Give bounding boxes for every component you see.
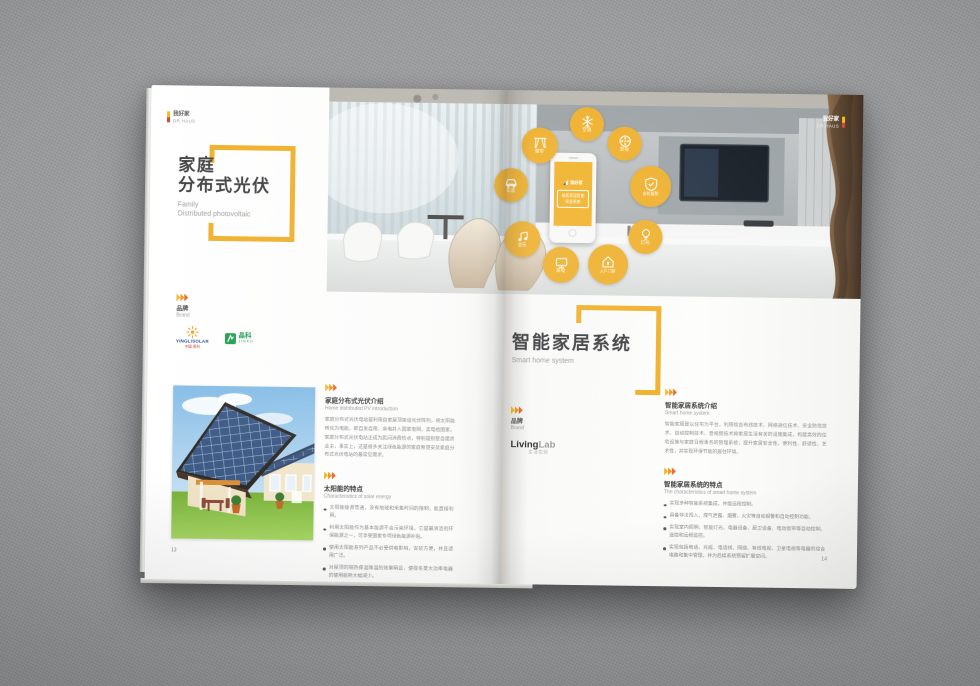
page-title: 家庭 分布式光伏 Family Distributed photovoltaic (178, 155, 271, 220)
brand-label-cn: 品牌 (176, 303, 189, 312)
publisher-logo: 我好家 DR.HAUS (167, 111, 196, 124)
hotspot-label: 窗帘 (535, 150, 544, 155)
jinko-sub: JINKO (238, 340, 253, 344)
feature-item: 实现室内照明、智能灯光、电器设备、厨卫设备、电动窗帘等自动控制、遥控和远程监控。 (663, 524, 825, 543)
phone-screen-text: 助您家居智能 家居系统 (556, 190, 589, 209)
livinglab-name-2: Lab (538, 439, 555, 450)
tv-icon (554, 255, 567, 268)
chevrons-icon (511, 406, 524, 414)
publisher-name-en: DR.HAUS (817, 123, 839, 128)
sunburst-icon (186, 326, 199, 339)
title-accent-frame (575, 305, 661, 395)
hotspot-label: 空调 (582, 129, 591, 134)
feature-item: 利用太阳能作为基本能源不会污染环境，它是最清洁的环保能源之一，可享受国家专项绿色… (323, 525, 453, 543)
section-smarthome-intro: 智能家居系统介绍 Smart home system 智能家居是以住宅为平台，利… (664, 388, 827, 459)
section-solar-features: 太阳能的特点 Characteristics of solar energy 太… (323, 472, 455, 582)
yingli-name: YINGLISOLAR (176, 338, 209, 343)
feature-item: 太阳能能源普通，没有地域和采集时间的限制，能直接利用。 (323, 505, 453, 523)
hotspot-label: 入户门禁 (600, 270, 616, 274)
feature-list: 太阳能能源普通，没有地域和采集时间的限制，能直接利用。 利用太阳能作为基本能源不… (323, 505, 454, 582)
section-body: 智能家居是以住宅为平台，利用综合布线技术、网络通信技术、安全防范技术、自动控制技… (664, 421, 826, 459)
light-bulb-icon (639, 227, 652, 240)
living-room-photo: 我好家 DR.HAUS 我好家 助您家居智能 家居系统 (327, 88, 864, 299)
title-en-line2: Distributed photovoltaic (178, 210, 271, 221)
page-number-right: 14 (821, 556, 827, 562)
spine-fold-shadow (475, 90, 534, 585)
livinglab-sub: 生活实验 (510, 449, 555, 456)
brand-label-en: Brand (176, 312, 189, 318)
film-reel-icon (618, 134, 631, 147)
page-right: 智能家居系统 Smart home system 品牌 Brand Living… (501, 90, 864, 589)
feature-item: 实现多种智能系统集成，并能远程控制。 (664, 501, 826, 511)
hotspot-lighting: 灯光 (628, 220, 662, 254)
section-smarthome-features: 智能家居系统的特点 The characteristics of smart h… (663, 468, 826, 563)
section-pv-intro: 家庭分布式光伏介绍 Home distributed PV introducti… (324, 384, 455, 463)
section-heading-cn: 家庭分布式光伏介绍 (325, 395, 455, 407)
chevrons-icon (324, 472, 337, 480)
publisher-name-cn: 我好家 (173, 111, 195, 118)
feature-item: 实现包括电话、光缆、电话线、网络、有线电视、卫星电视等电器的综合电路和集中管理，… (663, 544, 825, 563)
phone-screen: 我好家 助您家居智能 家居系统 (554, 162, 593, 227)
title-accent-frame (208, 145, 295, 242)
left-text-column: 家庭分布式光伏介绍 Home distributed PV introducti… (322, 384, 455, 584)
hotspot-label: 安防报警 (643, 192, 659, 196)
section-heading-en: Characteristics of solar energy (324, 494, 454, 502)
brand-logos: YINGLISOLAR 中国·英利 晶科 JINKO (176, 325, 254, 350)
hotspot-security: 安防报警 (630, 166, 672, 208)
phone-screen-line1: 助您家居智能 (562, 193, 585, 199)
page-stack-edge-left (140, 88, 153, 572)
living-room-illustration (327, 88, 864, 299)
hotspot-label: 音乐 (518, 244, 527, 249)
chevrons-icon (664, 468, 677, 476)
hotspot-label: 车库 (507, 190, 516, 195)
page-stack-edge-bottom (141, 578, 533, 588)
yingli-solar-logo: YINGLISOLAR 中国·英利 (176, 325, 209, 349)
hotspot-appliance: 家电 (543, 247, 579, 283)
title-cn-line1: 家庭 (178, 155, 271, 177)
section-heading-en: Smart home system (665, 410, 827, 418)
page-left: 我好家 DR.HAUS 家庭 分布式光伏 Family Distributed … (145, 85, 508, 584)
brand-block: 品牌 Brand (511, 406, 525, 431)
hotspot-air-conditioner: 空调 (570, 107, 604, 141)
fabric-background: 我好家 DR.HAUS 家庭 分布式光伏 Family Distributed … (0, 0, 980, 686)
livinglab-logo: LivingLab 生活实验 (510, 440, 555, 455)
section-heading-cn: 智能家居系统介绍 (665, 399, 827, 411)
phone-speaker (568, 157, 578, 159)
phone-app-name: 我好家 (570, 180, 583, 186)
title-en-line1: Family (178, 200, 271, 211)
hotspot-curtain: 窗帘 (521, 127, 557, 163)
title-en: Smart home system (512, 357, 632, 366)
title-cn: 智能家居系统 (512, 328, 632, 356)
page-number-left: 13 (171, 547, 177, 553)
music-note-icon (516, 230, 529, 243)
hotspot-video: 影视 (607, 126, 641, 160)
section-heading-en: Home distributed PV introduction (325, 406, 455, 414)
hotspot-label: 灯光 (641, 242, 650, 247)
page-title: 智能家居系统 Smart home system (512, 328, 632, 366)
hotspot-label: 影视 (620, 148, 629, 153)
publisher-name-en: DR.HAUS (173, 118, 195, 123)
feature-item: 具备非法闯入、煤气泄露、烟雾、火灾等自动报警和自动控制功能。 (663, 512, 825, 522)
hotspot-garage: 车库 (494, 168, 528, 202)
publisher-logo-overlay: 我好家 DR.HAUS (817, 116, 846, 129)
section-heading-cn: 智能家居系统的特点 (664, 479, 826, 491)
smartphone: 我好家 助您家居智能 家居系统 (549, 153, 596, 244)
solar-house-illustration (171, 385, 315, 540)
feature-item: 对屋顶的隔热保温降温的效果明显，使得冬夏大功率电器的使用能耗大幅减少。 (323, 564, 453, 582)
feature-item: 使用太阳能系列产品不必受供电影响，安装方便，并且适用广泛。 (323, 544, 453, 562)
solar-house-photo (171, 385, 315, 540)
hotspot-door-access: 入户门禁 (588, 244, 629, 285)
title-cn-line2: 分布式光伏 (178, 176, 271, 198)
yingli-sub: 中国·英利 (185, 345, 200, 350)
app-logo-icon (564, 180, 569, 185)
brochure-spread: 我好家 DR.HAUS 家庭 分布式光伏 Family Distributed … (145, 85, 864, 589)
jinko-name: 晶科 (238, 333, 253, 340)
chevrons-icon (665, 388, 678, 396)
hotspot-music: 音乐 (504, 221, 540, 257)
snowflake-icon (580, 115, 593, 128)
publisher-logo-bar-icon (842, 117, 845, 128)
phone-home-button (568, 229, 576, 237)
right-text-column: 智能家居系统介绍 Smart home system 智能家居是以住宅为平台，利… (663, 388, 828, 573)
house-lock-icon (601, 255, 615, 269)
brand-label-cn: 品牌 (511, 416, 524, 425)
feature-list: 实现多种智能系统集成，并能远程控制。 具备非法闯入、煤气泄露、烟雾、火灾等自动报… (663, 501, 826, 563)
chevrons-icon (325, 384, 338, 392)
car-icon (504, 175, 518, 189)
phone-screen-line2: 家居系统 (561, 199, 584, 205)
jinko-mark-icon (225, 333, 236, 344)
jinko-logo: 晶科 JINKO (225, 333, 254, 344)
publisher-logo-bar-icon (167, 111, 170, 122)
chevrons-icon (176, 293, 189, 301)
brand-block: 品牌 Brand (176, 293, 190, 318)
publisher-name-cn: 我好家 (817, 116, 839, 123)
section-body: 家庭分布式光伏电站是利用自家屋顶架设光伏阵列，将太阳能转化为电能，即自发自用，余… (324, 417, 455, 463)
shield-icon (644, 177, 658, 191)
brand-label-en: Brand (511, 425, 524, 431)
curtain-icon (533, 136, 546, 149)
livinglab-name-1: Living (510, 439, 538, 450)
section-heading-en: The characteristics of smart home system (664, 490, 826, 498)
hotspot-label: 家电 (556, 270, 565, 275)
section-heading-cn: 太阳能的特点 (324, 483, 454, 495)
